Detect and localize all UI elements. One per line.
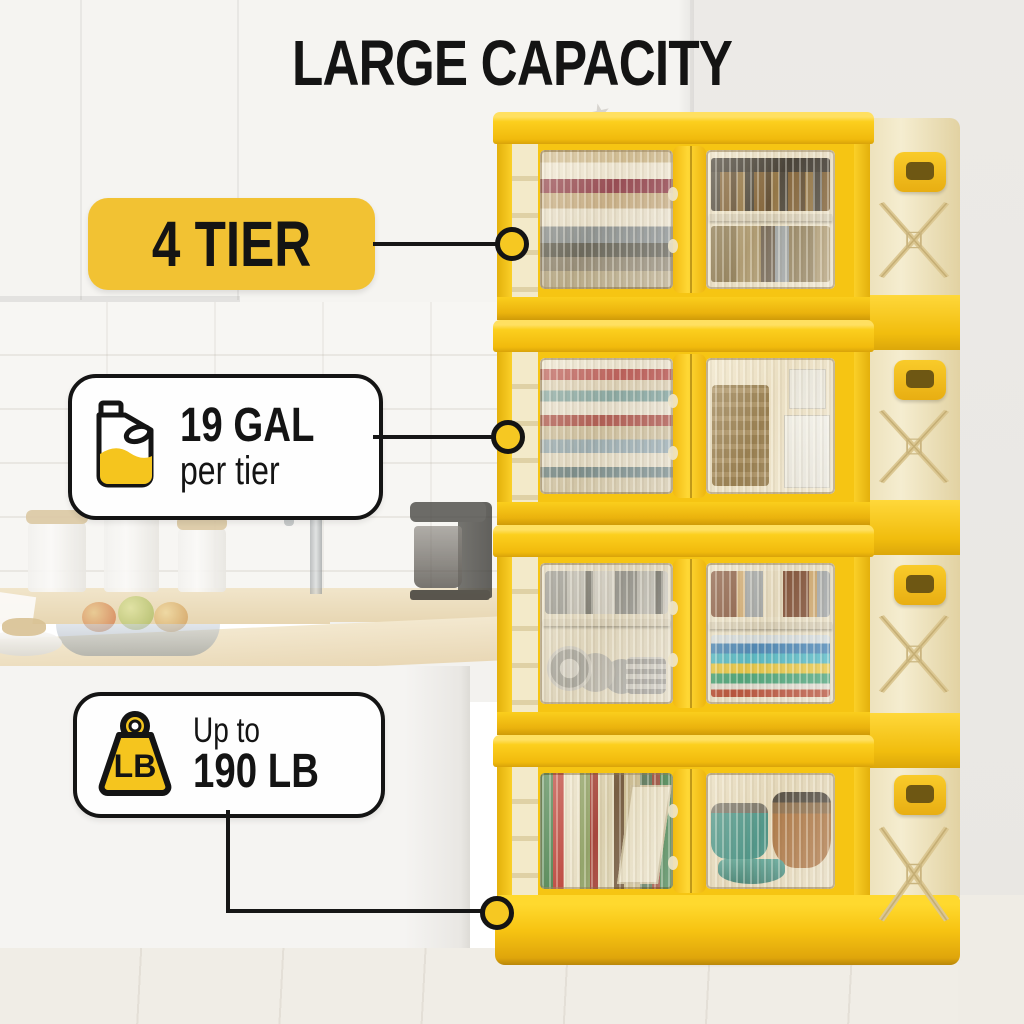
- tier-left-edge: [497, 767, 512, 897]
- tier-lid: [493, 112, 874, 144]
- door-handle-divider: [673, 354, 706, 498]
- fruit-bowl: [56, 596, 226, 660]
- side-x-emboss: [871, 404, 957, 489]
- product-infographic: ★ LARGE CAPACITY 4 TIER: [0, 0, 1024, 1024]
- capacity-connector-line: [373, 435, 495, 439]
- cabinet-tier-4: [497, 735, 870, 965]
- tier-door-left: [540, 150, 673, 289]
- capacity-callout: 19 GAL per tier: [68, 374, 383, 520]
- weight-connector-line-h: [226, 909, 484, 913]
- handle-hole: [906, 575, 934, 593]
- tier-right-edge: [854, 352, 870, 502]
- tier-door-right: [706, 563, 835, 704]
- side-handle-icon: [894, 775, 946, 815]
- capacity-note: per tier: [180, 451, 314, 492]
- handle-hole: [906, 370, 934, 388]
- handle-hole: [906, 785, 934, 803]
- tier-corner-ribs: [512, 144, 538, 297]
- cabinet-tier-3: [497, 525, 870, 735]
- tier-connector-line: [373, 242, 499, 246]
- door-glass: [540, 150, 673, 289]
- tier-door-right: [706, 150, 835, 289]
- weight-connector-line-v: [226, 810, 230, 913]
- tier-lid: [493, 525, 874, 557]
- capacity-anchor-dot: [491, 420, 525, 454]
- tier-badge: 4 TIER: [88, 198, 375, 290]
- tier-right-edge: [854, 557, 870, 712]
- cabinet-tier-1: [497, 112, 870, 320]
- tier-bottom-rim: [497, 502, 870, 525]
- weight-icon: LB: [77, 709, 193, 801]
- tier-anchor-dot: [495, 227, 529, 261]
- door-handle-divider: [673, 559, 706, 708]
- jug-icon: [72, 400, 180, 494]
- tier-door-left: [540, 358, 673, 494]
- door-glass: [706, 358, 835, 494]
- cabinet-tier-2: [497, 320, 870, 525]
- tier-body: [497, 144, 870, 297]
- cabinet-side-tier-3: [869, 555, 960, 705]
- side-handle-icon: [894, 565, 946, 605]
- tier-body: [497, 352, 870, 502]
- tier-bottom-rim: [497, 297, 870, 320]
- weight-prefix: Up to: [193, 713, 319, 749]
- side-x-emboss: [871, 609, 957, 699]
- weight-value: 190 LB: [193, 748, 319, 797]
- tier-bottom-rim: [497, 712, 870, 735]
- capacity-text: 19 GAL per tier: [180, 402, 348, 492]
- tier-door-left: [540, 563, 673, 704]
- page-title: LARGE CAPACITY: [0, 26, 1024, 100]
- side-x-emboss: [871, 819, 957, 929]
- door-glass: [540, 563, 673, 704]
- tier-body: [497, 557, 870, 712]
- tier-lid: [493, 320, 874, 352]
- cabinet-side-tier-4: [869, 765, 960, 935]
- tier-door-right: [706, 358, 835, 494]
- cabinet-side-tier-2: [869, 350, 960, 495]
- kitchen-canister: [28, 520, 86, 592]
- tier-door-left: [540, 773, 673, 889]
- tier-left-edge: [497, 557, 512, 712]
- kitchen-canister: [178, 526, 226, 592]
- tier-body: [497, 767, 870, 897]
- door-glass: [706, 150, 835, 289]
- weight-anchor-dot: [480, 896, 514, 930]
- door-glass: [706, 773, 835, 889]
- storage-cabinet: [497, 112, 960, 965]
- side-handle-icon: [894, 360, 946, 400]
- weight-callout: LB Up to 190 LB: [73, 692, 385, 818]
- tier-door-right: [706, 773, 835, 889]
- door-glass: [540, 773, 673, 889]
- cabinet-side-tier-1: [869, 142, 960, 290]
- weight-text: Up to 190 LB: [193, 713, 350, 798]
- tier-right-edge: [854, 767, 870, 897]
- side-handle-icon: [894, 152, 946, 192]
- handle-hole: [906, 162, 934, 180]
- tier-badge-label: 4 TIER: [152, 207, 311, 281]
- door-glass: [540, 358, 673, 494]
- weight-icon-label: LB: [114, 748, 157, 784]
- door-handle-divider: [673, 146, 706, 293]
- capacity-value: 19 GAL: [180, 402, 314, 451]
- side-x-emboss: [871, 196, 957, 284]
- door-glass: [706, 563, 835, 704]
- tier-corner-ribs: [512, 767, 538, 897]
- door-handle-divider: [673, 769, 706, 893]
- tier-left-edge: [497, 144, 512, 297]
- tier-corner-ribs: [512, 557, 538, 712]
- coffee-maker: [410, 502, 492, 602]
- tier-lid: [493, 735, 874, 767]
- tier-right-edge: [854, 144, 870, 297]
